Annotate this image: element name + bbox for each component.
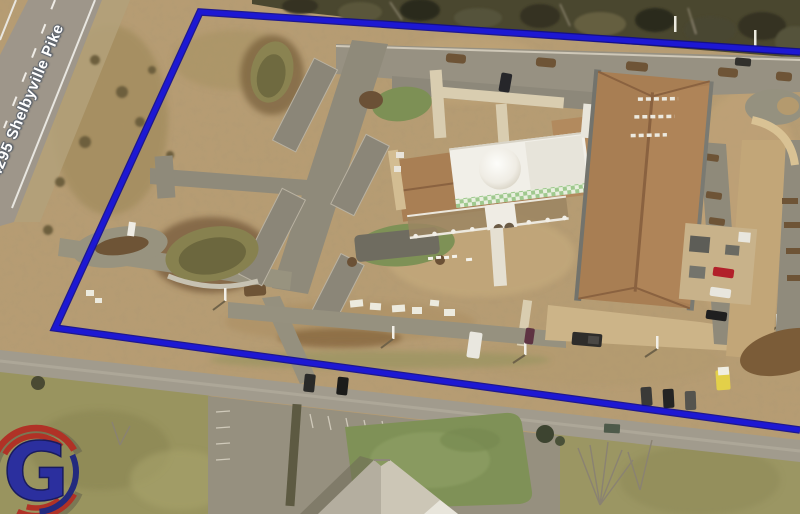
aerial-scene: G <box>0 0 800 514</box>
logo-letter: G <box>3 426 69 514</box>
watermark-logo: G <box>0 426 79 514</box>
rooftop-unit <box>725 245 740 256</box>
road-car-1 <box>303 374 316 393</box>
road-car-2 <box>336 377 349 396</box>
dumpster <box>604 424 620 434</box>
map-canvas[interactable]: G 4295 Shelbyville Pike <box>0 0 800 514</box>
light-pole <box>754 30 757 46</box>
evergreen-tree <box>536 425 554 443</box>
light-pole <box>674 16 677 32</box>
parked-car-1 <box>640 387 652 407</box>
rooftop-unit <box>689 266 706 279</box>
rooftop-unit <box>689 235 710 253</box>
shrub <box>31 376 45 390</box>
parked-car-2 <box>663 389 675 409</box>
north-road-car <box>735 57 752 66</box>
parked-car-3 <box>685 391 697 410</box>
